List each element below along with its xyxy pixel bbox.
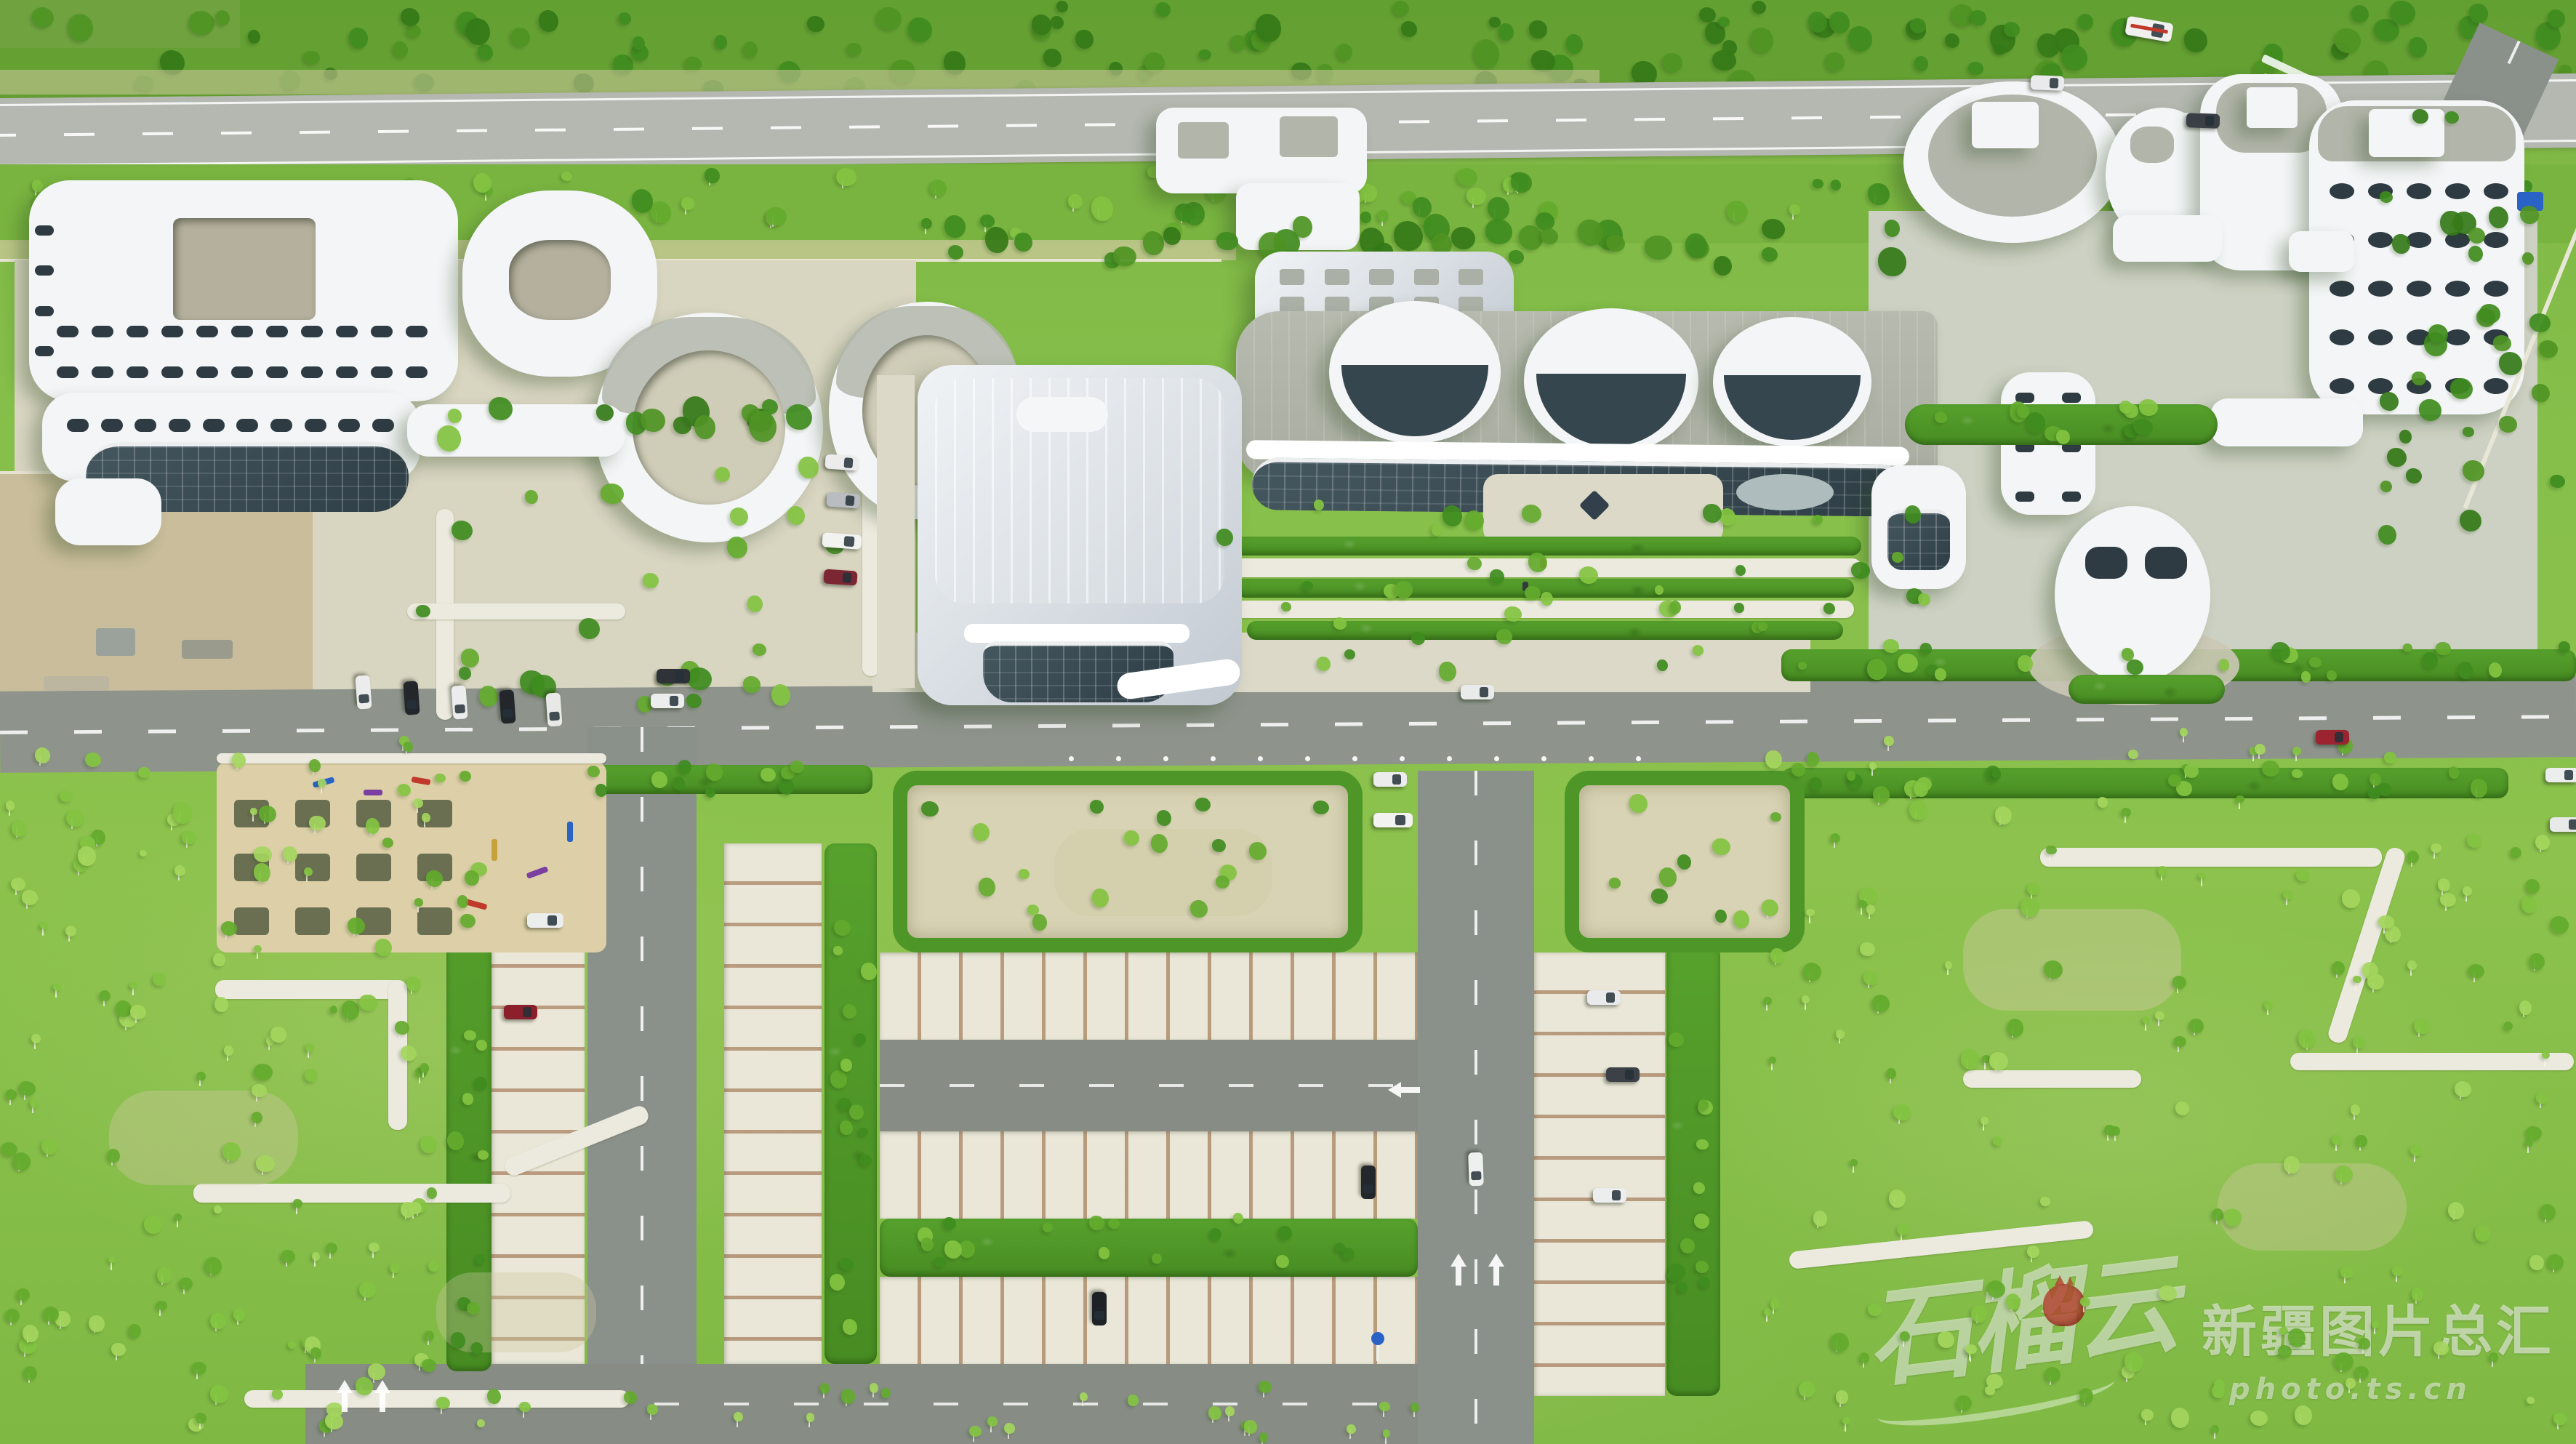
plaza-bollards <box>1494 756 1499 761</box>
tree <box>395 1021 409 1035</box>
tree <box>467 1302 479 1315</box>
car-windshield <box>845 495 854 506</box>
tree <box>1993 1136 2002 1146</box>
tree <box>293 1199 302 1208</box>
tree <box>2298 1029 2316 1048</box>
tree <box>1413 197 1432 217</box>
parking-road-center <box>1418 771 1534 1444</box>
tree <box>1910 18 1926 33</box>
porthole-windows <box>2330 183 2354 199</box>
tree <box>1698 1099 1709 1110</box>
left-building-windows-west <box>35 306 54 316</box>
car-windshield <box>2335 732 2343 742</box>
lawn-path <box>2290 1053 2574 1070</box>
tree <box>2469 4 2488 24</box>
tree <box>1851 562 1870 579</box>
car-windshield <box>1606 992 1615 1003</box>
tree <box>1961 1049 1980 1069</box>
tree <box>1056 1 1068 13</box>
tree <box>2450 378 2473 399</box>
tree <box>1655 585 1664 595</box>
road-arrow-up <box>1456 1267 1461 1285</box>
silver-hall-canopy <box>964 624 1189 643</box>
tree <box>214 997 228 1012</box>
tree <box>2143 1016 2151 1023</box>
tree <box>406 976 420 991</box>
tree <box>189 11 215 35</box>
tree <box>687 667 712 690</box>
tree <box>786 404 812 430</box>
tree <box>205 1257 222 1275</box>
tree <box>2283 890 2293 899</box>
porthole-windows <box>2445 183 2470 199</box>
parked-car-white <box>824 454 859 470</box>
service-rooftop-unit <box>1178 122 1229 159</box>
tree <box>479 686 498 706</box>
tree <box>2504 1022 2513 1030</box>
parked-car-black <box>1092 1292 1107 1325</box>
tree <box>1677 854 1691 870</box>
tree <box>1439 662 1456 681</box>
tree <box>2104 1125 2116 1136</box>
tree <box>2199 873 2206 879</box>
tree <box>1278 1226 1292 1240</box>
parked-car-maroon <box>823 569 857 585</box>
tree <box>2410 1145 2423 1157</box>
tree <box>427 1187 437 1199</box>
tree <box>1068 194 1083 209</box>
tree <box>1878 247 1906 276</box>
tree <box>1606 235 1625 252</box>
tree <box>705 787 715 798</box>
hedge-right-col <box>1666 945 1720 1396</box>
tree <box>1836 1030 1844 1039</box>
car-windshield <box>2050 78 2058 88</box>
tree <box>1802 995 1810 1003</box>
tree <box>930 180 947 196</box>
car-windshield <box>1471 1171 1481 1180</box>
left-building-windows <box>266 366 288 378</box>
tree <box>414 798 423 809</box>
tree <box>2392 1267 2403 1276</box>
tree <box>969 1426 982 1437</box>
tree <box>2499 352 2522 375</box>
tree <box>1696 1261 1709 1272</box>
playground-planting-pits <box>295 907 330 935</box>
south-bar-windows <box>101 419 123 432</box>
tree <box>422 1359 436 1372</box>
parked-van-white <box>822 532 862 550</box>
tree <box>1798 662 1807 670</box>
tree <box>596 404 614 421</box>
tree <box>944 1240 963 1259</box>
tree <box>1529 20 1547 39</box>
tree <box>326 1243 337 1254</box>
tree <box>1490 569 1504 585</box>
tree <box>840 1120 853 1135</box>
tree <box>973 823 990 841</box>
left-building-windows <box>406 366 428 378</box>
left-building-courtyard <box>173 218 316 320</box>
tree <box>1522 505 1541 523</box>
car-windshield <box>842 572 851 583</box>
porthole-windows <box>2445 329 2470 345</box>
parked-car-black <box>403 681 420 715</box>
tree <box>375 939 392 955</box>
tree <box>2535 835 2550 849</box>
tree <box>2527 1397 2534 1403</box>
tree <box>979 878 995 897</box>
tree <box>213 953 225 966</box>
tree <box>881 1388 891 1398</box>
tree <box>288 1341 296 1349</box>
tree <box>1208 1406 1221 1420</box>
tree <box>943 1217 956 1229</box>
tree <box>1432 524 1442 536</box>
tree <box>2550 475 2565 488</box>
tree <box>348 918 365 935</box>
tree <box>6 801 15 811</box>
tree <box>1344 649 1355 659</box>
tree <box>1659 867 1677 887</box>
tree <box>2219 659 2229 670</box>
tree <box>987 1416 998 1427</box>
south-bar-windows <box>372 419 394 432</box>
tree <box>934 1257 945 1268</box>
construction-debris <box>182 640 233 659</box>
tree <box>1541 592 1553 606</box>
tree <box>2353 1036 2366 1048</box>
tree <box>2468 246 2483 262</box>
link-tower-windows <box>2062 492 2081 502</box>
playground-planting-pits <box>417 907 452 935</box>
garden-path <box>407 603 625 619</box>
tree <box>1249 842 1267 860</box>
lawn-path <box>1963 1070 2141 1088</box>
tree <box>404 742 413 752</box>
tree <box>2412 372 2426 386</box>
tree <box>1519 225 1543 250</box>
tree <box>44 1307 59 1322</box>
tree <box>250 808 257 814</box>
tree <box>1693 1182 1705 1193</box>
tree <box>2511 847 2521 858</box>
tree <box>1935 412 1948 422</box>
car-windshield <box>523 1007 531 1017</box>
tree <box>1813 179 1823 189</box>
tree <box>359 995 377 1011</box>
car-windshield <box>1363 1184 1373 1193</box>
tree <box>771 684 790 706</box>
tree <box>1401 21 1417 36</box>
tree <box>254 1064 273 1080</box>
tree <box>460 914 475 928</box>
barrel-rooftop-units <box>1414 269 1439 285</box>
plaza-bollards <box>1069 756 1074 761</box>
tree <box>1090 800 1104 814</box>
tree <box>2355 1366 2370 1379</box>
tree <box>1699 7 1716 23</box>
south-bar-windows <box>135 419 156 432</box>
driving-car-white <box>1468 1152 1484 1187</box>
tree <box>489 397 513 420</box>
tree <box>2078 14 2093 30</box>
parked-car-black <box>499 689 515 723</box>
tree <box>457 895 468 907</box>
tree <box>2378 915 2394 928</box>
tree <box>539 10 558 32</box>
tree <box>182 831 196 845</box>
tree <box>2440 893 2455 907</box>
porthole-windows <box>2484 183 2508 199</box>
tree <box>2367 974 2385 990</box>
tree <box>447 1131 464 1150</box>
tree <box>2551 916 2569 934</box>
tree <box>948 245 963 260</box>
tree <box>1525 586 1540 600</box>
left-building-windows <box>231 326 253 337</box>
porthole-windows <box>2445 281 2470 297</box>
tree <box>2189 1019 2203 1033</box>
tree <box>730 508 748 526</box>
tree <box>1848 26 1872 52</box>
lawn-path <box>2326 846 2407 1045</box>
tree <box>1995 806 2012 825</box>
tree <box>222 1142 241 1160</box>
service-rooftop-unit <box>1280 116 1338 157</box>
tree <box>1965 1344 1977 1354</box>
tree <box>89 1315 105 1332</box>
tree <box>1411 1403 1419 1412</box>
tree <box>651 771 667 788</box>
tree <box>1720 508 1735 525</box>
tree <box>2037 33 2060 57</box>
tree <box>2378 783 2391 796</box>
tree <box>980 214 995 228</box>
tree <box>1190 900 1208 917</box>
left-building-windows <box>57 326 79 337</box>
tree <box>1099 1247 1110 1259</box>
left-building-windows <box>127 366 148 378</box>
tree <box>2159 1285 2176 1301</box>
tree <box>17 1288 30 1301</box>
tree <box>1195 798 1211 811</box>
tree <box>2387 448 2407 467</box>
tree <box>1914 782 1928 797</box>
tree <box>478 1150 489 1160</box>
stall-col-right <box>1534 952 1665 1396</box>
porthole-windows <box>2368 281 2393 297</box>
tree <box>1443 505 1462 526</box>
tree <box>2532 384 2550 402</box>
tree <box>1317 657 1331 670</box>
tree <box>1411 632 1425 645</box>
tree <box>460 771 471 782</box>
stall-col-inner-left <box>724 843 822 1364</box>
plaza-bollards <box>1258 756 1263 761</box>
tree <box>2279 1327 2288 1335</box>
tree <box>2212 1384 2225 1398</box>
tree <box>685 57 701 71</box>
tree <box>1985 1386 1995 1395</box>
tree <box>2519 1000 2532 1015</box>
tree <box>1075 30 1093 49</box>
link-tower-windows <box>2015 492 2034 502</box>
tree <box>1905 505 1921 524</box>
car-windshield <box>1625 1070 1634 1080</box>
tree <box>1789 204 1800 215</box>
tree <box>1989 1052 2008 1070</box>
barrel-rooftop-units <box>1325 269 1349 285</box>
tree <box>224 1046 233 1056</box>
tree <box>1847 771 1855 781</box>
cylinder-mid-roof <box>2130 127 2174 163</box>
tree <box>1163 227 1181 245</box>
tree <box>6 1309 19 1323</box>
tree <box>861 963 877 981</box>
tree <box>459 667 471 680</box>
tree <box>1883 639 1899 653</box>
tree <box>1244 1420 1257 1435</box>
car-windshield <box>843 457 853 468</box>
tree <box>1645 236 1672 260</box>
parked-car-white <box>1373 772 1407 787</box>
tree <box>1889 1190 1906 1208</box>
tree <box>2046 846 2057 855</box>
left-building-windows <box>231 366 253 378</box>
tree <box>1609 878 1621 888</box>
tree <box>369 1243 380 1252</box>
tree <box>30 1099 38 1108</box>
tree <box>1900 1331 1910 1341</box>
south-bar-windows <box>338 419 360 432</box>
tree <box>1893 1104 1911 1120</box>
tree <box>272 1389 284 1400</box>
tree <box>1474 39 1500 68</box>
parked-car-white <box>1593 1188 1626 1203</box>
parked-car-darkred <box>504 1005 537 1019</box>
cylinder-hedge-south <box>2069 675 2225 704</box>
tree <box>579 618 600 639</box>
tree <box>2128 750 2138 759</box>
tree <box>2463 460 2484 481</box>
tree <box>422 813 430 822</box>
tree <box>416 605 430 618</box>
tree <box>401 8 420 26</box>
car-white <box>2031 75 2065 91</box>
car-windshield <box>502 708 513 718</box>
tree <box>1898 654 1918 673</box>
tree <box>1092 889 1109 907</box>
storage-shack <box>96 628 135 656</box>
tree <box>426 870 443 887</box>
tree <box>807 16 824 32</box>
tree <box>2380 481 2392 492</box>
tree <box>2079 1388 2093 1404</box>
tree <box>1667 1269 1680 1282</box>
tree <box>100 990 111 1001</box>
tree <box>2521 896 2537 913</box>
tree <box>2351 1104 2360 1115</box>
tree <box>1826 52 1845 71</box>
tree <box>1465 510 1485 530</box>
tree <box>210 1313 226 1330</box>
plaza-bollards <box>1211 756 1216 761</box>
tree <box>1863 971 1878 985</box>
tree <box>841 1389 856 1403</box>
glass-wing-endcap <box>55 478 161 545</box>
left-building-windows-west <box>35 346 54 356</box>
tree <box>1216 529 1233 546</box>
tree <box>2040 1197 2050 1206</box>
tree <box>1528 553 1548 572</box>
tree <box>1091 196 1113 221</box>
tree <box>2380 392 2399 411</box>
plaza-bollards <box>1163 756 1168 761</box>
tree <box>1752 1 1766 14</box>
tree <box>1124 830 1139 846</box>
tree <box>1259 1381 1272 1393</box>
tree <box>1987 1280 2006 1298</box>
tree <box>820 1383 830 1394</box>
tree <box>318 779 326 787</box>
tree <box>1216 875 1229 888</box>
construction-debris <box>44 676 109 691</box>
tree <box>2559 641 2569 653</box>
tree <box>1511 172 1532 193</box>
tree <box>715 467 730 481</box>
tree <box>1693 645 1704 656</box>
tree <box>1210 1228 1221 1240</box>
tree <box>254 846 272 862</box>
tree <box>1758 622 1768 631</box>
tree <box>2399 430 2412 443</box>
tree <box>1810 777 1822 790</box>
left-building-windows <box>92 326 113 337</box>
porthole-windows <box>2407 281 2431 297</box>
tree <box>144 1216 161 1234</box>
barrel-rooftop-units <box>1458 269 1483 285</box>
playground-planting-pits <box>234 907 269 935</box>
tree <box>2007 1019 2024 1037</box>
tree <box>325 1413 343 1429</box>
tree <box>2522 252 2534 265</box>
hedge-road-south <box>1781 768 2508 798</box>
tree <box>1657 659 1668 671</box>
tree <box>2332 961 2345 974</box>
tree <box>1014 233 1032 252</box>
tree <box>1860 942 1875 957</box>
tree <box>1808 12 1827 33</box>
tree <box>2445 111 2460 124</box>
fitness-equipment <box>491 839 497 861</box>
tree <box>252 1112 262 1123</box>
tree <box>2455 1081 2472 1098</box>
tree <box>259 806 276 822</box>
tree <box>2378 525 2396 545</box>
left-building-windows <box>57 366 79 378</box>
tree <box>1799 1381 1814 1397</box>
car-windshield <box>2205 116 2214 126</box>
tree <box>1699 1277 1710 1288</box>
left-building-windows <box>161 326 183 337</box>
tree <box>1089 1216 1104 1230</box>
barrel-rooftop-units <box>1325 297 1349 313</box>
tree <box>2463 427 2474 437</box>
tree <box>1004 1423 1015 1434</box>
tree <box>349 28 369 49</box>
tree <box>116 1000 132 1017</box>
